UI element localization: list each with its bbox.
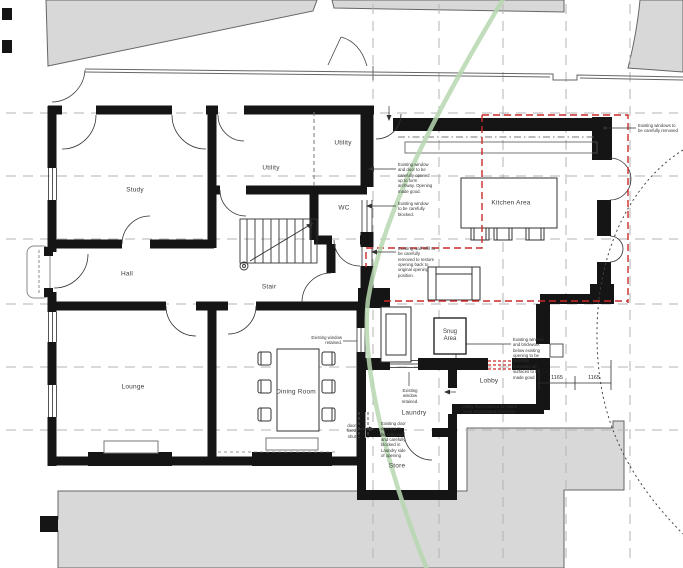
gate-arc-north xyxy=(328,37,367,66)
gate-post-top-1 xyxy=(2,8,12,20)
annotation-window-retained-laundry: Existing window retained. xyxy=(395,388,425,404)
dimension-1165-right: 1165 xyxy=(588,375,600,381)
room-label-hall: Hall xyxy=(121,271,133,278)
sofa-kitchen xyxy=(428,267,480,300)
floor-plan-canvas: Study Utility Utility WC Stair Hall Loun… xyxy=(0,0,683,568)
room-label-stair: Stair xyxy=(262,284,276,291)
dimension-1165-left: 1165 xyxy=(551,375,563,381)
room-label-wc: WC xyxy=(338,205,349,212)
annotation-window-blocked: Existing window to be carefully blocked. xyxy=(398,201,432,217)
annotation-wall-infill: Existing wall infill to be carefully rem… xyxy=(398,246,435,278)
lobby-step xyxy=(550,344,563,357)
kitchen-counter xyxy=(405,142,597,153)
boundary-fence xyxy=(52,37,683,102)
annotation-lobby-floor: Lobby floor lowered to match level of pr… xyxy=(461,404,518,415)
neighbour-north-east xyxy=(628,0,683,72)
room-label-study: Study xyxy=(126,187,144,194)
annotation-door-fixed: door fixed shut xyxy=(340,423,356,439)
annotation-window-brickwork: Existing window and brickwork below exis… xyxy=(513,337,546,380)
room-label-dining: Dining Room xyxy=(276,389,316,396)
sofa-snug xyxy=(381,307,411,362)
room-label-snug: Snug Area xyxy=(436,329,464,343)
lounge-window-seat xyxy=(104,441,158,453)
neighbour-north-strip xyxy=(332,0,564,12)
room-label-utility-small: Utility xyxy=(334,140,351,147)
staircase xyxy=(240,219,317,270)
room-label-laundry: Laundry xyxy=(402,410,427,417)
gate-post-top-2 xyxy=(2,40,12,53)
gate-arc-west xyxy=(52,70,85,102)
removed-window-hatch xyxy=(488,361,512,369)
neighbour-buildings xyxy=(2,0,683,568)
entrance-porch xyxy=(27,246,53,298)
neighbour-north-west xyxy=(46,0,317,66)
dining-window-seat xyxy=(266,438,318,450)
room-label-utility: Utility xyxy=(262,165,279,172)
annotation-window-retained-left: Existing window retained. xyxy=(302,335,342,346)
room-label-lobby: Lobby xyxy=(480,378,499,385)
room-label-store: Store xyxy=(389,463,406,470)
room-label-kitchen: Kitchen Area xyxy=(491,200,530,207)
annotation-windows-removed: Existing windows to be carefully removed xyxy=(638,123,681,134)
floor-plan-drawing xyxy=(0,0,683,568)
annotation-door-blocked: Existing door opening to be retained and… xyxy=(381,421,407,459)
annotation-archway: Existing window and door to be carefully… xyxy=(398,162,435,194)
room-label-lounge: Lounge xyxy=(122,384,145,391)
